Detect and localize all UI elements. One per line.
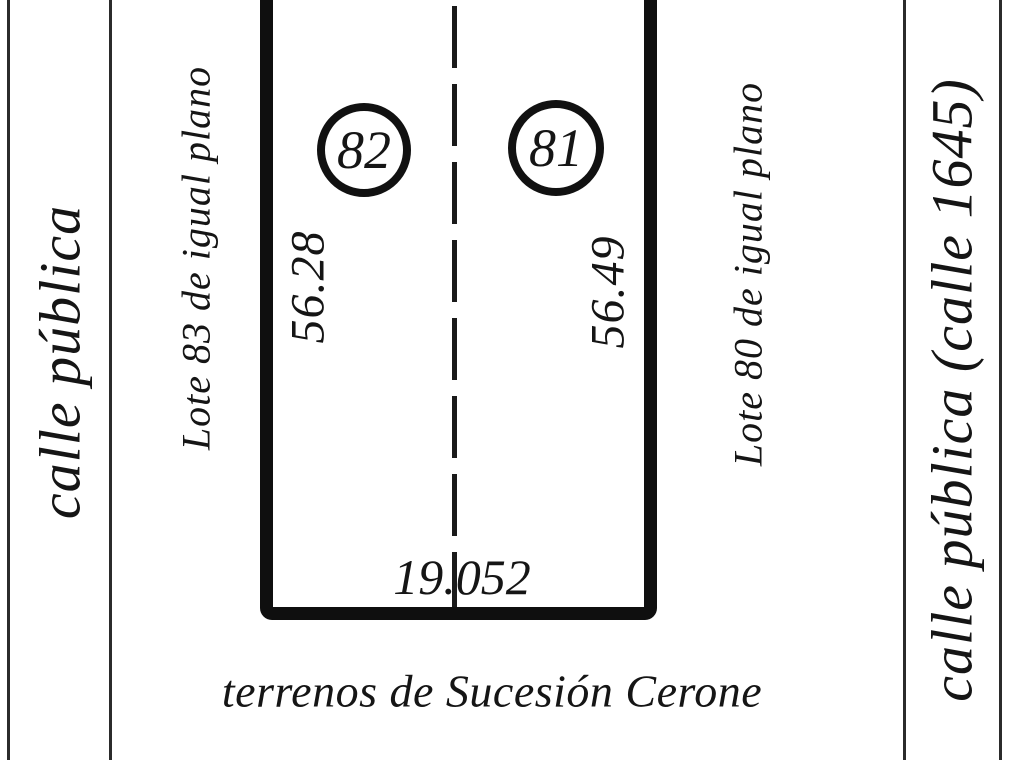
lot-82-number: 82: [337, 119, 391, 181]
left-street-outer-line: [7, 0, 10, 760]
neighbor-left-label: Lote 83 de igual plano: [173, 66, 220, 450]
lot-82-depth-measurement: 56.28: [281, 231, 336, 344]
right-street-label: calle pública (calle 1645): [919, 78, 986, 702]
neighbor-bottom-label: terrenos de Sucesión Cerone: [222, 665, 762, 718]
neighbor-right-label: Lote 80 de igual plano: [725, 82, 772, 466]
right-street-outer-line: [999, 0, 1002, 760]
lot-82-circle: 82: [317, 103, 411, 197]
right-street-inner-line: [903, 0, 906, 760]
left-street-inner-line: [109, 0, 112, 760]
survey-plan: calle pública calle pública (calle 1645)…: [0, 0, 1024, 768]
lot-81-number: 81: [529, 117, 583, 179]
lot-divider-dashed-line: [452, 6, 457, 607]
lot-81-circle: 81: [508, 100, 604, 196]
left-street-label: calle pública: [27, 205, 94, 519]
lot-81-depth-measurement: 56.49: [581, 236, 636, 349]
frontage-measurement: 19.052: [393, 548, 531, 606]
